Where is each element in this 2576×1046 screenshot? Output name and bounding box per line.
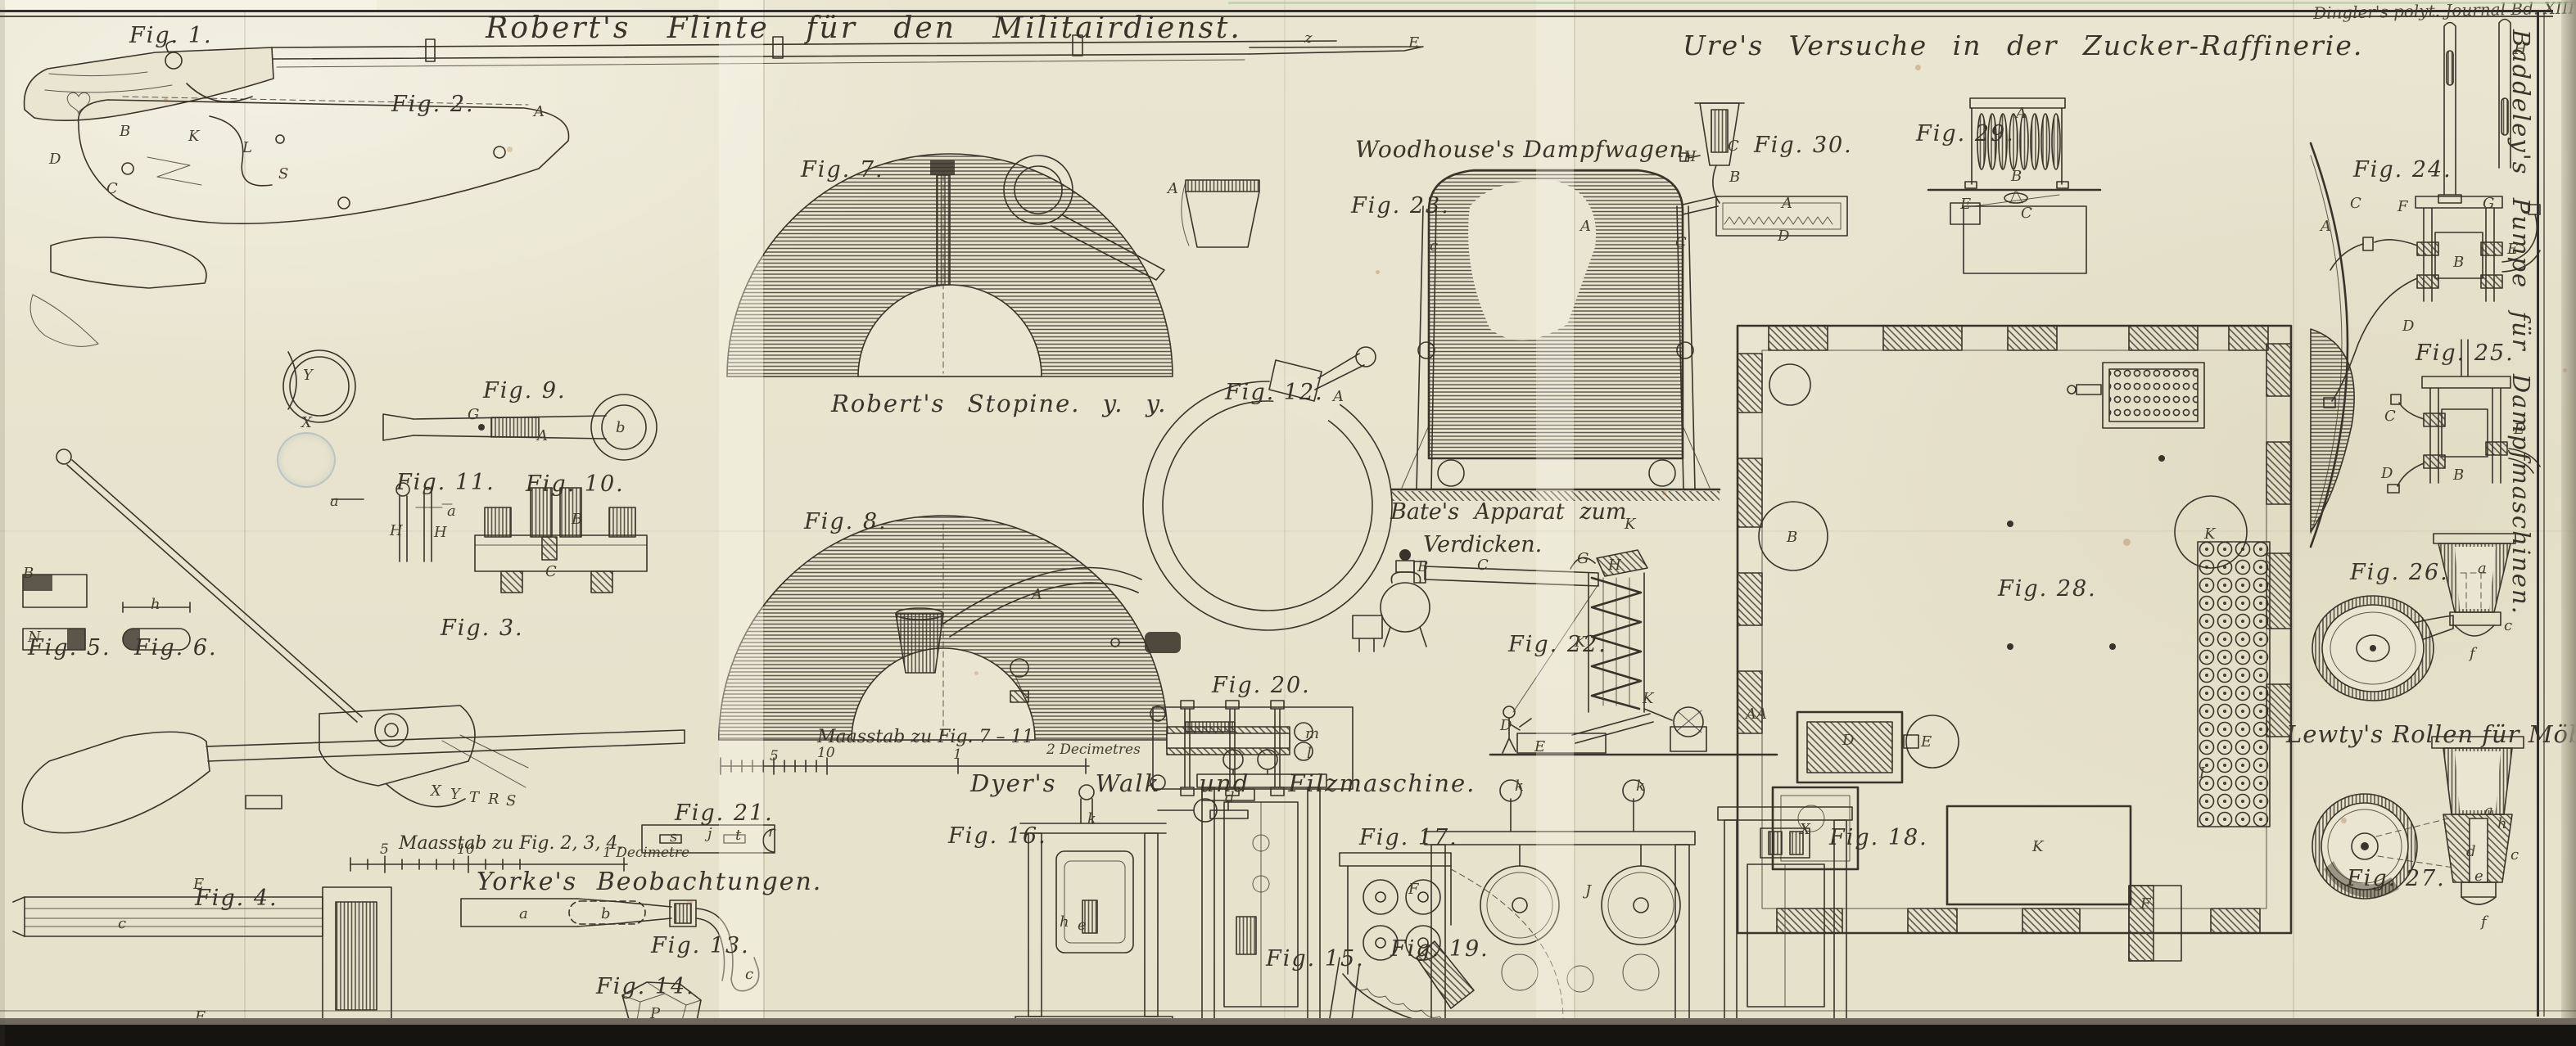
part-letter: T (469, 789, 479, 806)
part-letter: E (193, 876, 204, 893)
title-yorke: Yorke's Beobachtungen. (477, 868, 822, 896)
part-letter: K (1643, 690, 1653, 707)
part-letter: B (2011, 168, 2022, 185)
scan-edge-green (1228, 2, 2576, 4)
part-letter: B (23, 565, 34, 582)
part-letter: A (1032, 586, 1042, 603)
part-letter: h (151, 596, 160, 613)
part-letter: G (468, 406, 479, 423)
fig-label-f6: Fig. 6. (134, 635, 218, 661)
fig-label-f2: Fig. 2. (391, 92, 475, 117)
part-letter: A (534, 103, 545, 120)
fig-label-f11: Fig. 11. (396, 470, 495, 495)
part-letter: a (447, 503, 456, 520)
part-letter: F (2397, 198, 2408, 215)
fig-label-f29: Fig. 29. (1916, 121, 2015, 147)
part-letter: r (768, 823, 775, 841)
fig-label-f10: Fig. 10. (526, 471, 625, 497)
part-letter: A (537, 427, 548, 444)
part-letter: c (2504, 617, 2512, 634)
scale-7-11-unit: 2 Decimetres (1046, 742, 1141, 758)
part-letter: H (390, 522, 403, 539)
part-letter: C (2021, 205, 2032, 222)
fig-label-f8: Fig. 8. (804, 509, 888, 534)
part-letter: B (2453, 254, 2464, 271)
fig-label-f9: Fig. 9. (483, 378, 567, 404)
part-letter: A (1168, 180, 1178, 197)
fig-label-f20: Fig. 20. (1212, 673, 1311, 698)
scale-2-3-4-label: Maasstab zu Fig. 2, 3, 4. (399, 833, 623, 854)
part-letter: a (519, 905, 528, 922)
part-letter: G (2483, 195, 2494, 212)
labels-layer: Fig. 1.Fig. 2.Fig. 3.Fig. 4.Fig. 5.Fig. … (0, 0, 2576, 1046)
part-letter: S (278, 165, 288, 183)
part-letter: C (106, 180, 118, 197)
part-letter: e (2474, 868, 2483, 885)
fig-label-f3: Fig. 3. (441, 615, 524, 641)
fig-label-f14: Fig. 14. (596, 974, 695, 999)
part-letter: c (2510, 846, 2519, 863)
part-letter: c (1430, 237, 1438, 255)
part-letter: E (1921, 733, 1932, 751)
part-letter: B (572, 511, 582, 528)
part-letter: D (1842, 732, 1854, 749)
part-letter: d (2466, 843, 2476, 860)
part-letter: C (1477, 557, 1489, 574)
part-letter: L (242, 139, 252, 156)
fig-label-f24: Fig. 24. (2353, 157, 2452, 183)
part-letter: Y (450, 786, 460, 803)
plate-border-top-2 (0, 16, 2553, 17)
part-letter: D (2381, 465, 2393, 482)
part-letter: E (1408, 34, 1419, 52)
engraving-plate: Fig. 1.Fig. 2.Fig. 3.Fig. 4.Fig. 5.Fig. … (0, 0, 2576, 1046)
scale-7-11-tick-1: 1 (953, 746, 962, 763)
part-letter: C (2350, 195, 2361, 212)
scale-2-3-4-unit: 1 Decimetre (603, 845, 689, 861)
part-letter: B (1729, 169, 1740, 186)
part-letter: B (1417, 558, 1428, 575)
part-letter: h (1060, 913, 1069, 931)
part-letter: I (2199, 764, 2205, 782)
part-letter: B (120, 123, 130, 140)
title-ure: Ure's Versuche in der Zucker-Raffinerie. (1683, 29, 2363, 61)
part-letter: S (506, 792, 516, 809)
part-letter: A (1580, 218, 1591, 235)
part-letter: C (545, 563, 557, 580)
part-letter: k (1636, 778, 1645, 795)
part-letter: A (2321, 218, 2331, 235)
part-letter: J (1585, 882, 1591, 899)
part-letter: B (2453, 467, 2464, 484)
part-letter: R (488, 791, 499, 808)
part-letter: k (1515, 778, 1524, 795)
scale-7-11-label: Maasstab zu Fig. 7 – 11 (817, 727, 1033, 747)
plate-border-bottom (0, 1010, 2576, 1012)
fig-label-f21: Fig. 21. (675, 800, 774, 826)
part-letter: e (1078, 917, 1087, 934)
part-letter: Y (303, 367, 313, 384)
fig-label-f18: Fig. 18. (1829, 825, 1928, 850)
part-letter: B (1787, 529, 1797, 546)
part-letter: k (1087, 810, 1096, 827)
part-letter: F (2140, 895, 2151, 913)
part-letter: l (1307, 745, 1312, 762)
fig-label-f22: Fig. 22. (1508, 632, 1607, 657)
part-letter: C (1675, 234, 1687, 251)
fig-label-f28: Fig. 28. (1998, 576, 2097, 602)
part-letter: X (431, 782, 441, 800)
scale-2-3-4-tick-10: 10 (457, 841, 475, 858)
title-bate-line2: Verdicken. (1423, 532, 1542, 557)
fig-label-f30: Fig. 30. (1754, 133, 1853, 158)
part-letter: C (1728, 138, 1739, 155)
part-letter: H (1608, 557, 1621, 574)
part-letter: X (1800, 821, 1810, 838)
part-letter: K (2204, 525, 2215, 543)
fig-label-f27: Fig. 27. (2347, 866, 2446, 891)
part-letter: X (301, 414, 312, 431)
part-letter: E (1534, 738, 1545, 755)
part-letter: K (188, 128, 199, 145)
part-letter: c (118, 915, 126, 932)
part-letter: A (1333, 388, 1344, 405)
fig-label-f1: Fig. 1. (129, 23, 213, 48)
scale-2-3-4-tick-5: 5 (380, 841, 389, 858)
fig-label-f13: Fig. 13. (651, 933, 750, 958)
part-letter: b (616, 419, 626, 436)
part-letter: D (1500, 717, 1512, 734)
part-letter: j (707, 825, 712, 842)
part-letter: D (2402, 318, 2414, 335)
scale-7-11-tick-5: 5 (770, 748, 779, 764)
title-baddeley: Baddeley's Pumpe für Dampfmaschinen. (2507, 29, 2535, 615)
part-letter: a (2484, 802, 2493, 819)
part-letter: A (2016, 105, 2027, 122)
part-letter: D (1778, 228, 1789, 245)
part-letter: N (28, 629, 41, 646)
fig-label-f16: Fig. 16. (948, 823, 1047, 849)
scale-7-11-tick-10: 10 (817, 745, 835, 761)
part-letter: F (1408, 881, 1419, 898)
part-letter: C (2384, 408, 2396, 425)
part-letter: K (1575, 633, 1585, 651)
part-letter: A (1782, 195, 1792, 212)
part-letter: t (735, 827, 741, 844)
plate-border-top (0, 10, 2553, 12)
part-letter: G (1577, 550, 1589, 567)
fig-label-f12: Fig. 12. (1225, 380, 1324, 405)
part-letter: m (1305, 725, 1319, 742)
part-letter: s (670, 828, 677, 845)
fig-label-f17: Fig. 17. (1359, 825, 1458, 850)
scan-edge-bottom-black (0, 1025, 2576, 1046)
fig-label-f25: Fig. 25. (2416, 340, 2515, 366)
fig-label-f26: Fig. 26. (2350, 560, 2449, 585)
title-lewty: Lewty's Rollen für Möbel. (2286, 720, 2576, 748)
plate-border-right (2537, 11, 2539, 1017)
part-letter: f (2481, 913, 2487, 931)
part-letter: c (745, 966, 753, 983)
fig-label-f19: Fig. 19. (1390, 936, 1489, 962)
title-bate-line1: Bate's Apparat zum (1390, 499, 1626, 525)
part-letter: a (2478, 560, 2487, 577)
fig-label-f15: Fig. 15. (1266, 946, 1365, 972)
paper-edge-left (0, 0, 5, 1046)
title-dyer: Dyer's Walk und Filzmaschine. (970, 769, 1476, 797)
part-letter: z (1304, 29, 1312, 47)
paper-edge-right (2561, 0, 2576, 1046)
plate-border-right-2 (2543, 11, 2545, 1017)
part-letter: K (2032, 838, 2043, 855)
part-letter: H (434, 524, 447, 541)
part-letter: h (2497, 815, 2507, 832)
title-stopine: Robert's Stopine. y. y. (831, 390, 1167, 417)
fig-label-f23: Fig. 23. (1351, 193, 1450, 219)
part-letter: E (1960, 196, 1971, 213)
part-letter: D (49, 151, 61, 168)
part-letter: b (601, 905, 611, 922)
fig-label-f7: Fig. 7. (801, 157, 884, 183)
scan-edge-top (0, 0, 377, 10)
part-letter: AA (1746, 706, 1767, 723)
scan-edge-bottom-grey (0, 1018, 2576, 1025)
title-woodhouse: Woodhouse's Dampfwagen. (1355, 136, 1692, 163)
part-letter: a (330, 493, 339, 510)
fig-label-f4: Fig. 4. (195, 886, 278, 911)
part-letter: f (2470, 645, 2475, 662)
